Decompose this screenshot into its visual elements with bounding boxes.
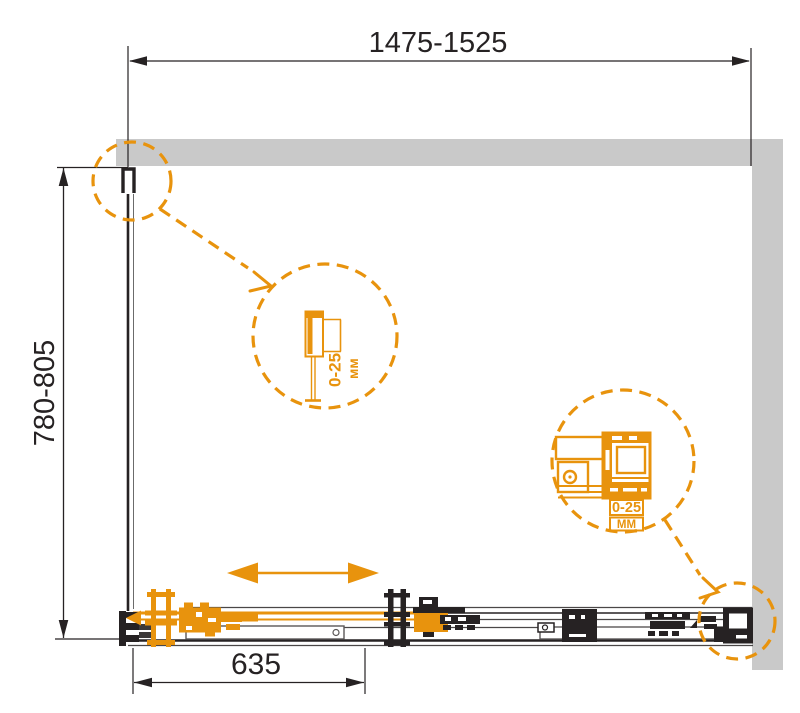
screw-icon <box>333 630 339 636</box>
dimension-door-width: 635 <box>133 648 365 694</box>
wall-profile-unit-label: мм <box>345 358 361 379</box>
dimension-width-label: 1475-1525 <box>369 27 508 59</box>
wall-profile-top <box>123 169 134 193</box>
door-bracket-orange <box>145 589 177 647</box>
wall-profile-adjustment-label: 0-25 <box>326 353 345 387</box>
glass-side-panel <box>123 169 134 611</box>
dimension-overall-depth: 780-805 <box>29 168 131 640</box>
drawing-canvas: 1475-1525 780-805 635 <box>0 0 800 713</box>
leader-tip-icon <box>700 578 718 598</box>
technical-drawing: 1475-1525 780-805 635 <box>0 0 800 713</box>
detail-roller-bracket-drawing: 0-25 ММ <box>556 433 650 531</box>
arrowhead-right-icon <box>732 56 750 66</box>
dimension-depth-label: 780-805 <box>29 340 61 446</box>
roller-unit-label: ММ <box>617 519 636 531</box>
detail-wall-profile-drawing: 0-25 мм <box>305 311 361 401</box>
slide-direction-arrow-icon <box>227 563 379 584</box>
arrowhead-up-icon <box>59 168 69 186</box>
leader-tip-icon <box>250 272 271 291</box>
arrowhead-down-icon <box>59 620 69 638</box>
leader-line-roller <box>665 520 700 575</box>
roller-adjustment-label: 0-25 <box>612 500 641 516</box>
guide-block <box>562 609 597 642</box>
screw-icon <box>543 625 548 630</box>
roller-window <box>617 447 645 473</box>
roller-hardware-middle <box>413 597 480 637</box>
dimension-door-width-label: 635 <box>231 648 281 681</box>
center-support-bracket <box>384 589 410 647</box>
leader-line-wall-profile <box>160 209 248 268</box>
arrowhead-right-icon <box>346 678 364 688</box>
wall-top <box>116 139 783 166</box>
arrowhead-left-icon <box>134 678 152 688</box>
arrowhead-left-icon <box>129 56 147 66</box>
